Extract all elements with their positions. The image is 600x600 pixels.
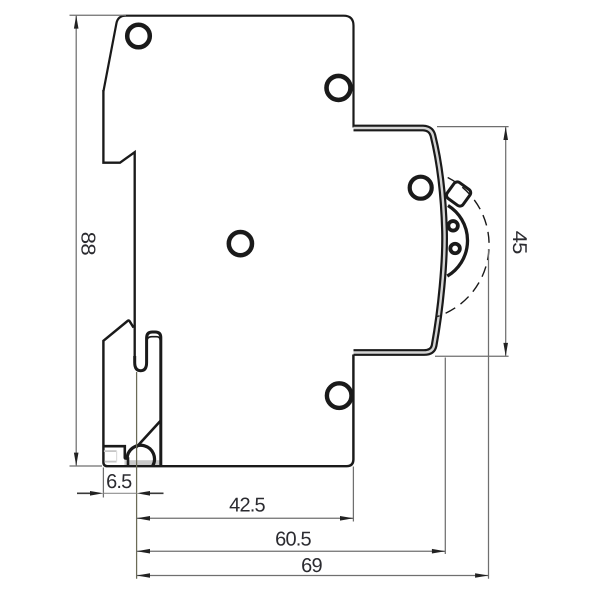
svg-text:69: 69 [301, 555, 322, 577]
svg-text:60.5: 60.5 [275, 529, 311, 551]
svg-text:6.5: 6.5 [106, 471, 132, 493]
svg-text:42.5: 42.5 [229, 494, 265, 516]
svg-text:45: 45 [508, 231, 530, 254]
svg-text:88: 88 [76, 232, 98, 256]
